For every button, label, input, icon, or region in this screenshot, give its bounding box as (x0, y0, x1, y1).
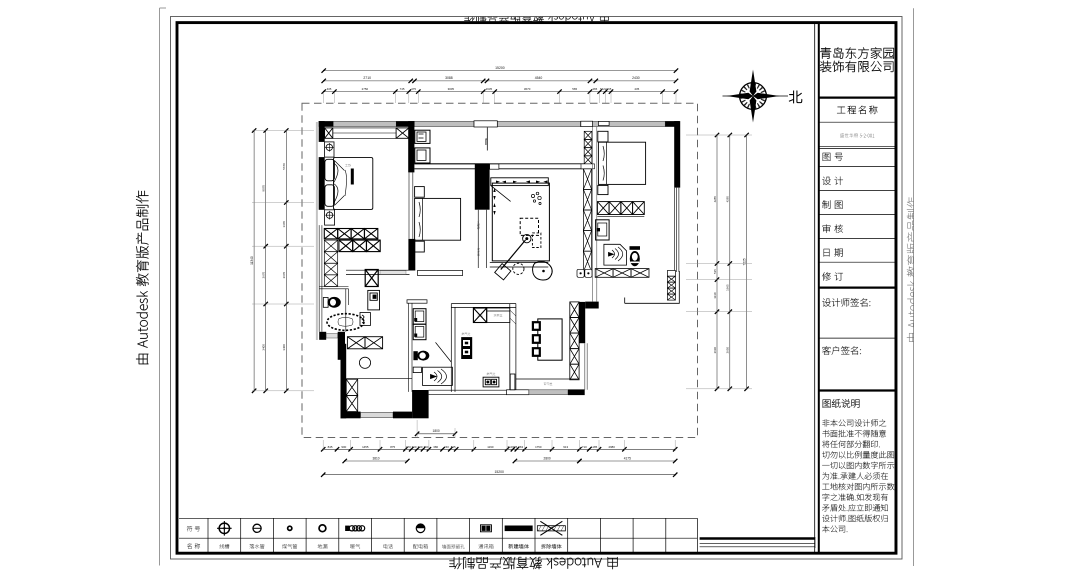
svg-text:300: 300 (412, 445, 417, 449)
svg-text:375: 375 (512, 445, 517, 449)
svg-text:2800: 2800 (544, 456, 551, 460)
svg-text:1800: 1800 (433, 429, 440, 433)
svg-text:2670: 2670 (282, 271, 286, 278)
svg-text:745: 745 (400, 87, 405, 91)
svg-text:3005: 3005 (448, 87, 455, 91)
svg-text:300: 300 (418, 445, 423, 449)
svg-text:1665: 1665 (726, 284, 730, 291)
svg-text:2465: 2465 (605, 87, 612, 91)
svg-text:2710: 2710 (363, 76, 371, 80)
svg-text:1455: 1455 (362, 445, 369, 449)
svg-text:900: 900 (341, 445, 346, 449)
svg-text:435: 435 (634, 87, 639, 91)
svg-text:465: 465 (592, 87, 597, 91)
svg-text:1750: 1750 (535, 445, 542, 449)
svg-text:9070: 9070 (262, 185, 266, 192)
svg-text:2750: 2750 (362, 87, 369, 91)
svg-text:435: 435 (327, 87, 332, 91)
svg-text:4175: 4175 (624, 456, 631, 460)
svg-text:240: 240 (444, 445, 449, 449)
svg-text:1635: 1635 (486, 87, 493, 91)
svg-text:1370: 1370 (282, 221, 286, 228)
svg-text:3670: 3670 (524, 87, 531, 91)
svg-text:15200: 15200 (494, 470, 504, 474)
svg-text:2980: 2980 (608, 445, 615, 449)
svg-text:913: 913 (563, 445, 568, 449)
svg-text:1130: 1130 (713, 292, 717, 299)
svg-text:3088: 3088 (445, 76, 453, 80)
svg-text:875: 875 (390, 445, 395, 449)
svg-text:380: 380 (433, 445, 438, 449)
svg-text:2630: 2630 (726, 347, 730, 354)
svg-text:710: 710 (582, 445, 587, 449)
svg-text:565: 565 (572, 87, 577, 91)
svg-text:750: 750 (423, 445, 428, 449)
svg-text:3810: 3810 (372, 456, 379, 460)
svg-text:845: 845 (328, 445, 333, 449)
svg-text:845: 845 (451, 445, 456, 449)
svg-text:5670: 5670 (282, 163, 286, 170)
svg-text:2670: 2670 (262, 271, 266, 278)
svg-text:535: 535 (713, 269, 717, 274)
svg-text:4285: 4285 (726, 196, 730, 203)
svg-text:2430: 2430 (632, 76, 640, 80)
svg-text:1185: 1185 (591, 445, 598, 449)
svg-text:4540: 4540 (535, 76, 543, 80)
svg-text:15200: 15200 (495, 66, 505, 70)
svg-text:4285: 4285 (713, 196, 717, 203)
svg-text:1190: 1190 (487, 445, 494, 449)
svg-text:863: 863 (518, 445, 523, 449)
svg-text:475: 475 (411, 87, 416, 91)
svg-text:3400: 3400 (262, 344, 266, 351)
svg-text:3400: 3400 (282, 344, 286, 351)
svg-text:2630: 2630 (713, 347, 717, 354)
svg-text:7225: 7225 (742, 258, 746, 265)
svg-text:11340: 11340 (250, 256, 254, 265)
svg-text:370: 370 (406, 445, 411, 449)
